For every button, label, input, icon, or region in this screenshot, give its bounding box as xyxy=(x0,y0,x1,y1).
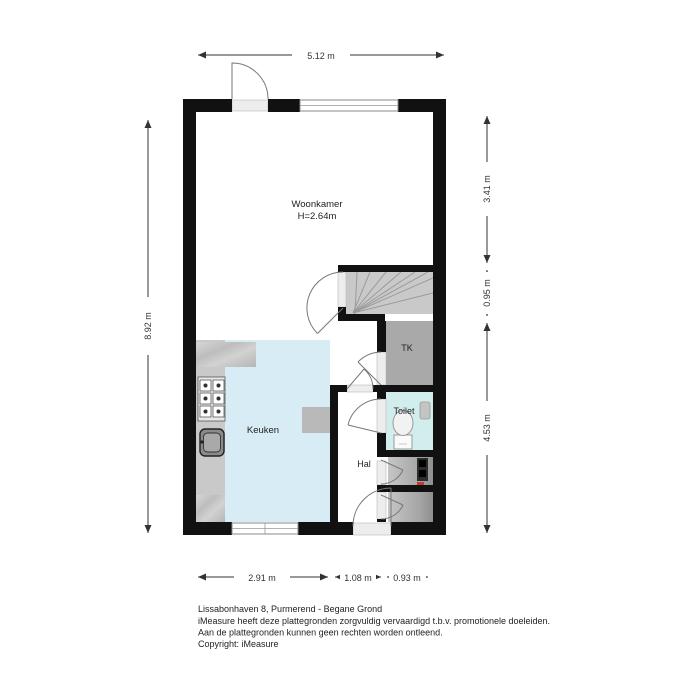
footer: Lissabonhaven 8, Purmerend - Begane Gron… xyxy=(198,604,550,649)
stove-icon xyxy=(198,377,225,421)
top-window xyxy=(300,100,398,111)
closet-bottom-floor xyxy=(388,492,433,522)
svg-text:0.93 m: 0.93 m xyxy=(393,573,421,583)
hal-label: Hal xyxy=(357,459,371,469)
svg-text:5.12 m: 5.12 m xyxy=(307,51,335,61)
woonkamer-height-label: H=2.64m xyxy=(298,211,337,222)
bottom-window xyxy=(232,523,298,534)
footer-disclaimer-1: iMeasure heeft deze plattegronden zorgvu… xyxy=(198,616,550,626)
svg-text:2.91 m: 2.91 m xyxy=(248,573,276,583)
dimension-left: 8.92 m xyxy=(140,120,156,533)
stair-door xyxy=(307,272,343,334)
dimension-top: 5.12 m xyxy=(198,47,444,62)
keuken-label: Keuken xyxy=(247,425,279,436)
toilet-icon xyxy=(393,411,413,450)
toilet-door xyxy=(348,399,381,433)
dimension-bottom: 2.91 m 1.08 m 0.93 m xyxy=(198,569,428,584)
dimension-right: 3.41 m 0.95 m 4.53 m xyxy=(479,116,495,533)
kitchen-sink-icon xyxy=(200,429,224,456)
room-floors xyxy=(196,272,433,522)
tk-label: TK xyxy=(401,343,413,353)
toilet-label: Toilet xyxy=(393,406,415,416)
footer-copyright: Copyright: iMeasure xyxy=(198,639,279,649)
garden-door xyxy=(232,63,268,99)
svg-text:0.95 m: 0.95 m xyxy=(482,279,492,307)
woonkamer-label: Woonkamer xyxy=(291,199,342,210)
floorplan-page: Woonkamer H=2.64m TK Keuken Hal Toilet 5… xyxy=(0,0,700,700)
footer-disclaimer-2: Aan de plattegronden kunnen geen rechten… xyxy=(198,628,443,638)
floorplan-canvas: Woonkamer H=2.64m TK Keuken Hal Toilet 5… xyxy=(0,0,700,700)
tk-floor xyxy=(386,321,433,385)
svg-text:4.53 m: 4.53 m xyxy=(482,414,492,442)
svg-text:3.41 m: 3.41 m xyxy=(482,175,492,203)
svg-text:1.08 m: 1.08 m xyxy=(344,573,372,583)
toilet-sink-icon xyxy=(420,402,430,419)
svg-text:8.92 m: 8.92 m xyxy=(143,312,153,340)
footer-title: Lissabonhaven 8, Purmerend - Begane Gron… xyxy=(198,604,382,614)
kitchen-island xyxy=(302,407,330,433)
